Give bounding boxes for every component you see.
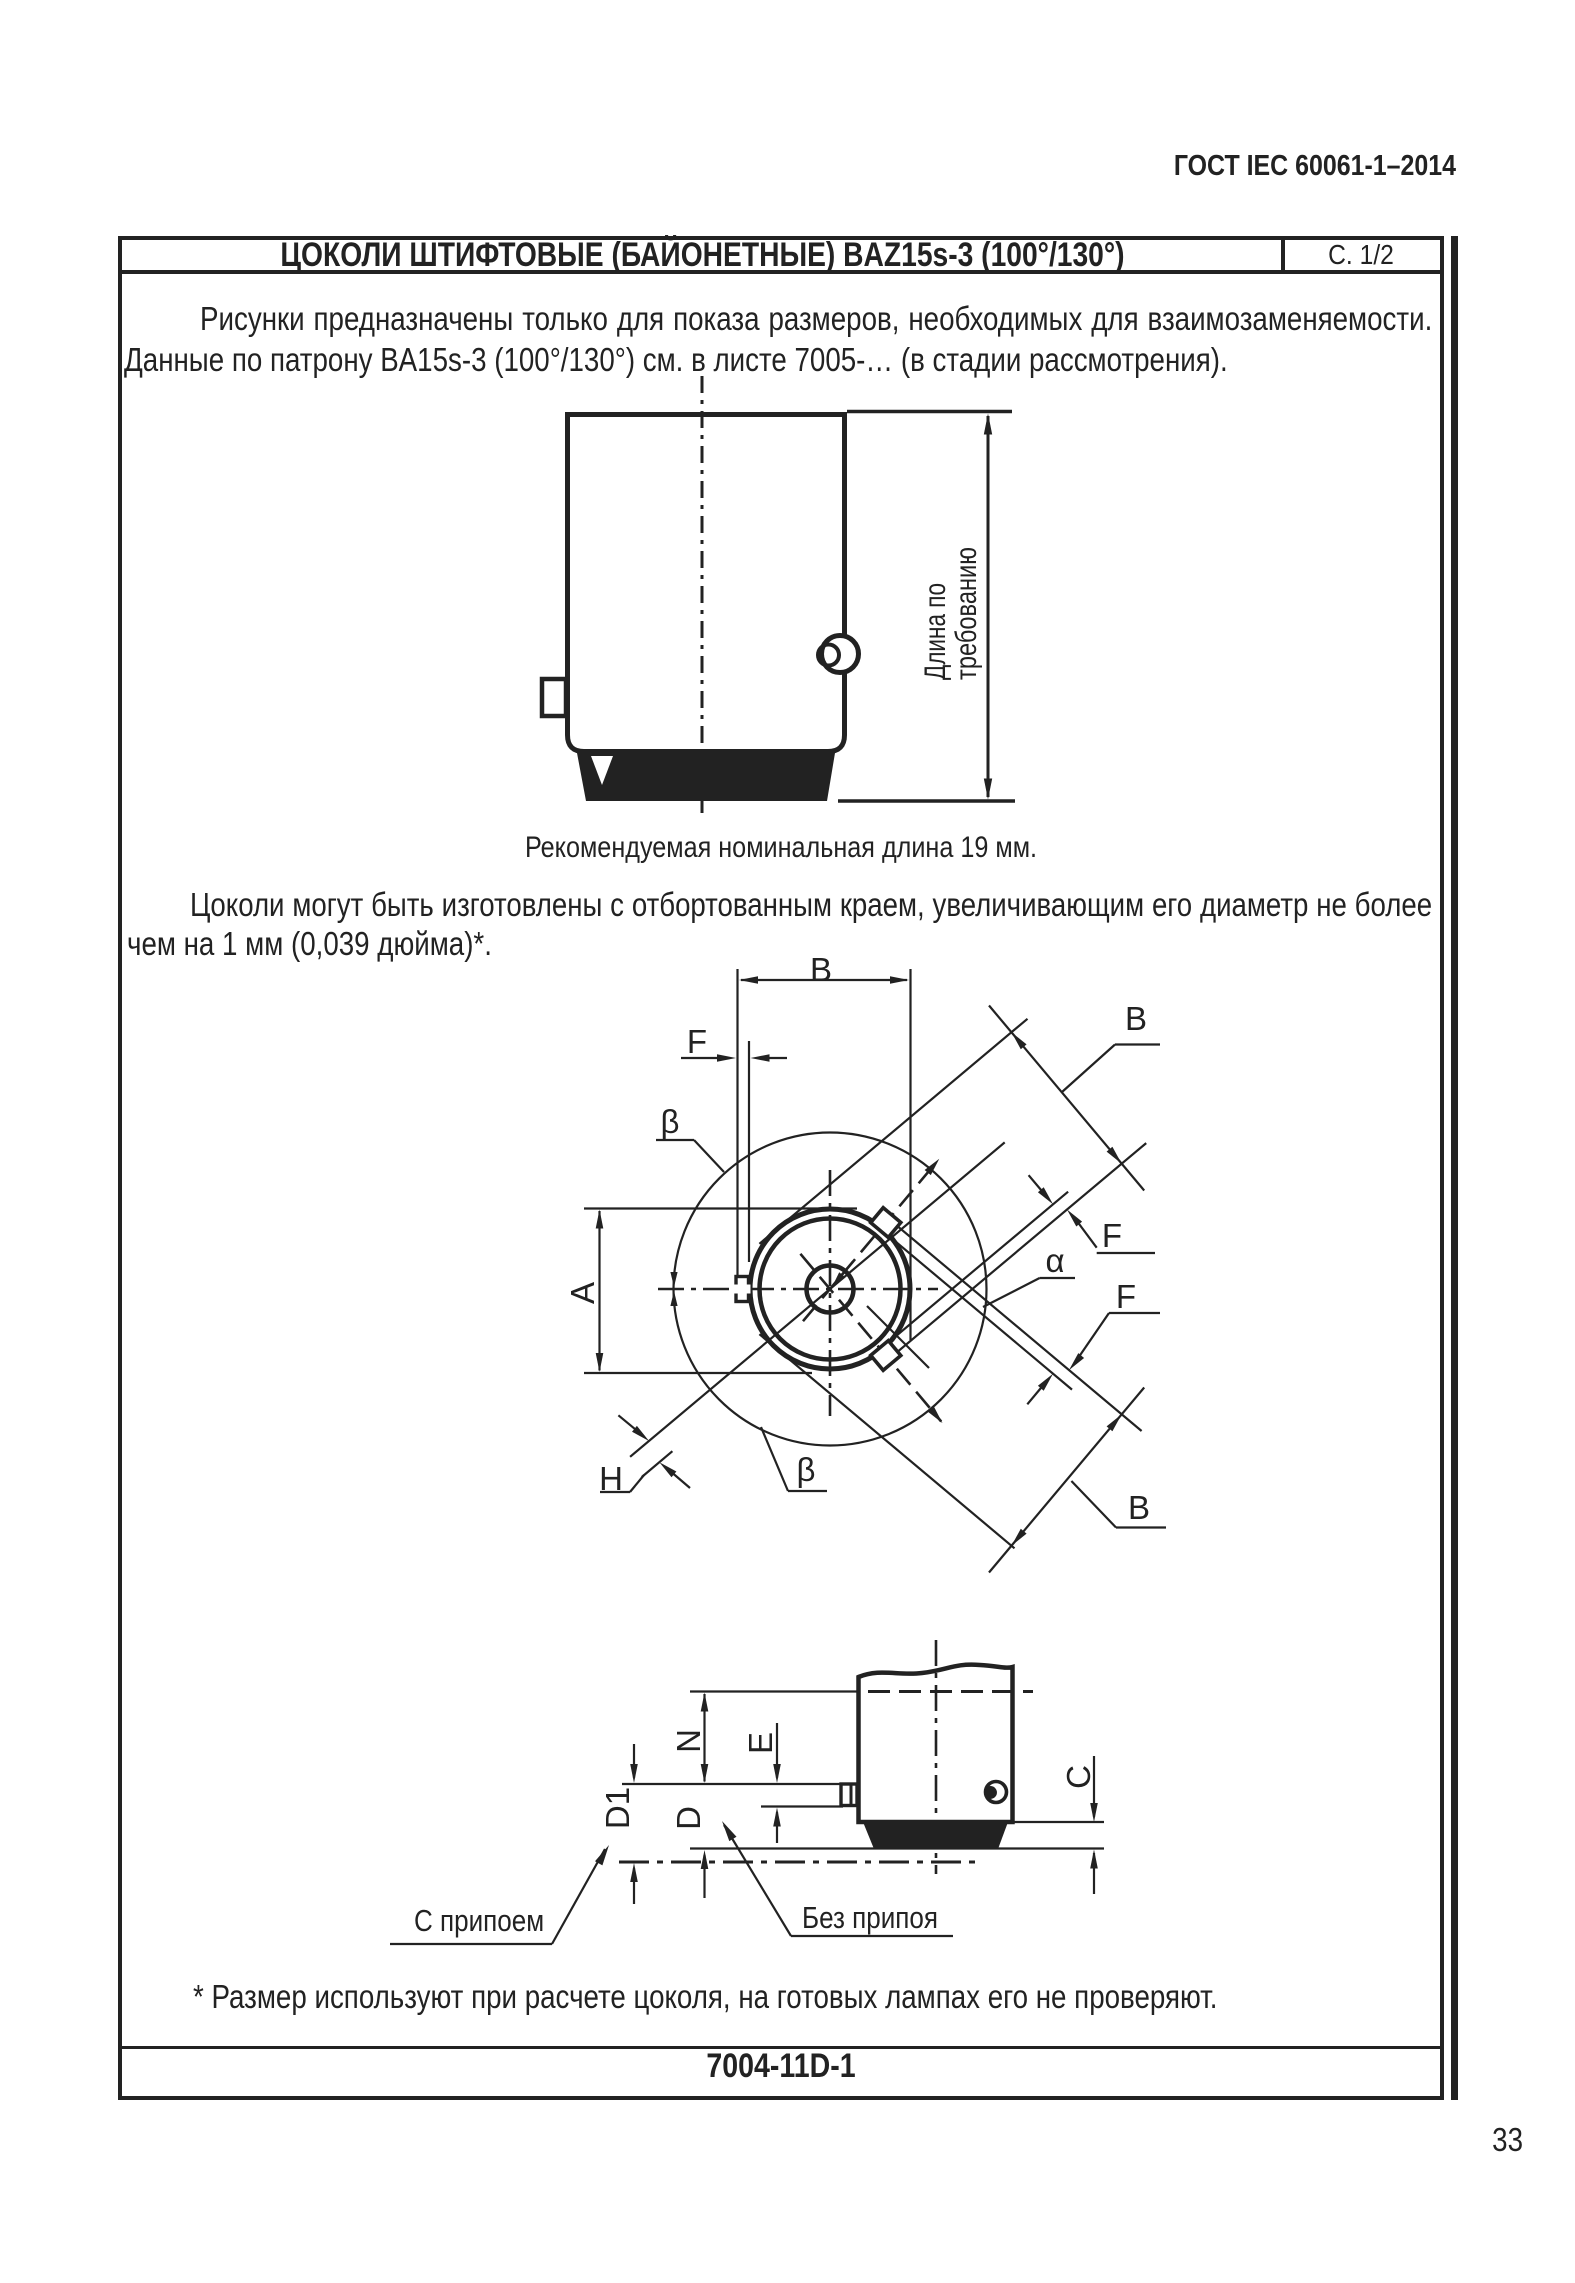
svg-text:требованию: требованию <box>950 547 983 680</box>
svg-text:β: β <box>797 1451 816 1488</box>
svg-text:F: F <box>1102 1217 1122 1254</box>
svg-text:A: A <box>564 1282 601 1304</box>
svg-text:B: B <box>810 951 832 988</box>
svg-text:F: F <box>1116 1278 1136 1315</box>
svg-text:D: D <box>670 1806 707 1830</box>
svg-text:β: β <box>661 1103 680 1140</box>
svg-text:H: H <box>599 1460 623 1497</box>
svg-text:B: B <box>1125 1000 1147 1037</box>
svg-text:α: α <box>1045 1242 1064 1279</box>
svg-text:D1: D1 <box>599 1787 636 1829</box>
svg-text:F: F <box>687 1023 707 1060</box>
svg-text:B: B <box>1128 1489 1150 1526</box>
svg-text:E: E <box>742 1732 779 1754</box>
svg-text:N: N <box>670 1729 707 1753</box>
svg-text:C: C <box>1060 1765 1097 1789</box>
svg-text:Длина по: Длина по <box>919 583 952 680</box>
